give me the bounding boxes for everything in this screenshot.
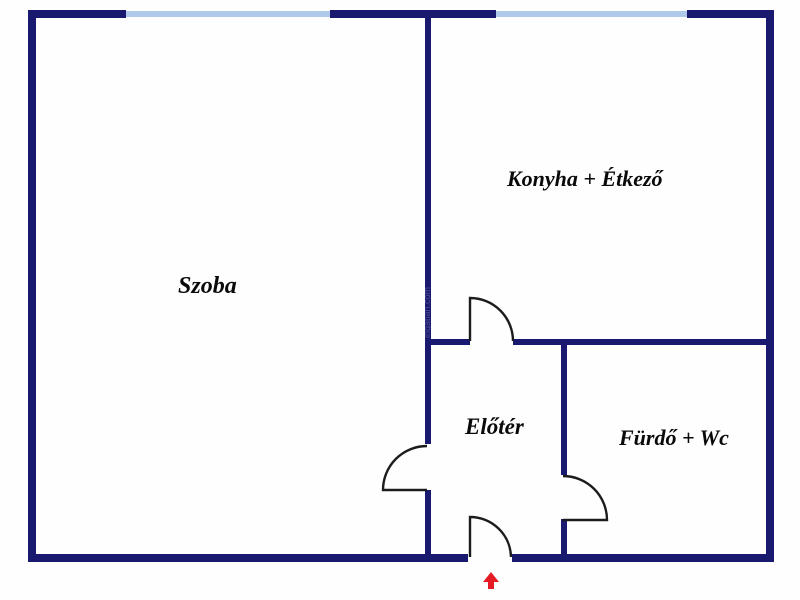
svg-text:ingatlan.com: ingatlan.com (422, 287, 432, 338)
